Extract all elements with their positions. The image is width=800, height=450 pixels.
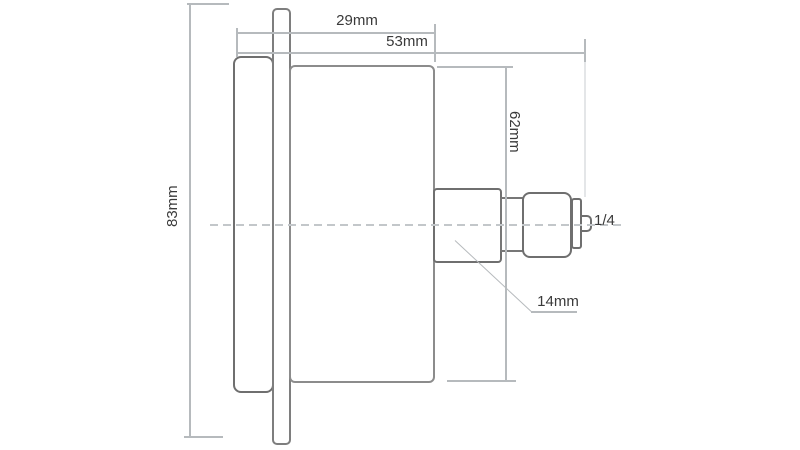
centerline bbox=[210, 224, 623, 226]
dimension-83mm-tick-top bbox=[187, 3, 229, 5]
leader-14mm-underline bbox=[531, 311, 577, 313]
label-14mm: 14mm bbox=[534, 294, 582, 310]
label-83mm: 83mm bbox=[165, 180, 181, 232]
label-53mm: 53mm bbox=[381, 34, 433, 50]
label-29mm: 29mm bbox=[330, 13, 384, 29]
label-62mm: 62mm bbox=[506, 106, 522, 158]
technical-drawing: 29mm 53mm 83mm 62mm 14mm 1/4 bbox=[0, 0, 800, 450]
label-thread-quarter: 1/4 bbox=[594, 213, 624, 229]
dimension-53mm-line bbox=[237, 52, 586, 54]
dimension-29mm-tick-right bbox=[434, 24, 436, 62]
dimension-62mm-ext-top bbox=[437, 66, 513, 68]
dimension-53mm-tick-right bbox=[584, 39, 586, 62]
dimension-83mm-tick-bottom bbox=[184, 436, 223, 438]
extension-collar-faint bbox=[584, 62, 586, 197]
dimension-83mm-line bbox=[189, 4, 191, 437]
dimension-62mm-ext-bottom bbox=[447, 380, 516, 382]
